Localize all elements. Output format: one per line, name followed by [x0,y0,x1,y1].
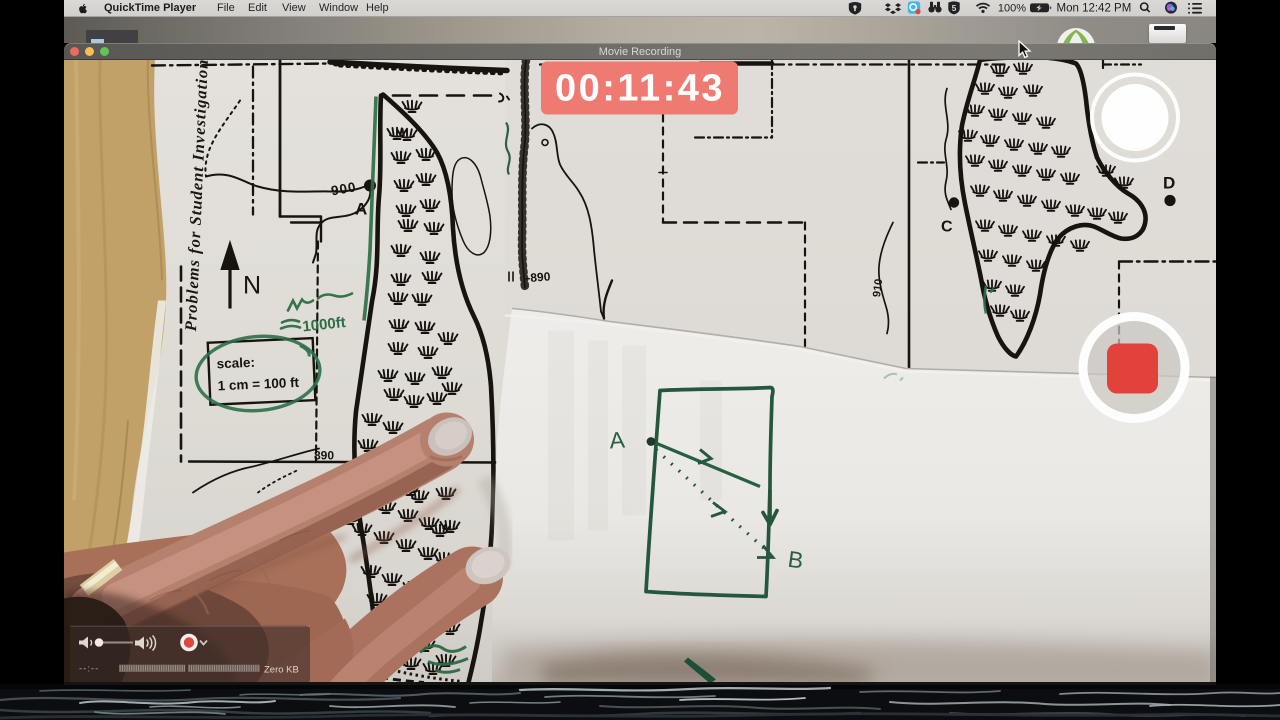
svg-text:Zero KB: Zero KB [264,664,299,675]
svg-text:A: A [355,199,367,218]
svg-text:C: C [941,218,953,235]
svg-text:890: 890 [314,448,334,462]
svg-text:Mon 12:42 PM: Mon 12:42 PM [1057,3,1132,15]
svg-text:5: 5 [952,3,957,13]
svg-text:scale:: scale: [216,354,255,371]
svg-text:910: 910 [871,278,885,298]
svg-text:N: N [243,271,261,299]
svg-text:A: A [609,426,627,453]
svg-text:–890: –890 [523,269,551,285]
svg-text:D: D [1163,173,1175,192]
svg-text:100%: 100% [998,3,1026,15]
svg-text:--:--: --:-- [79,663,99,674]
svg-text:00:11:43: 00:11:43 [555,67,725,109]
